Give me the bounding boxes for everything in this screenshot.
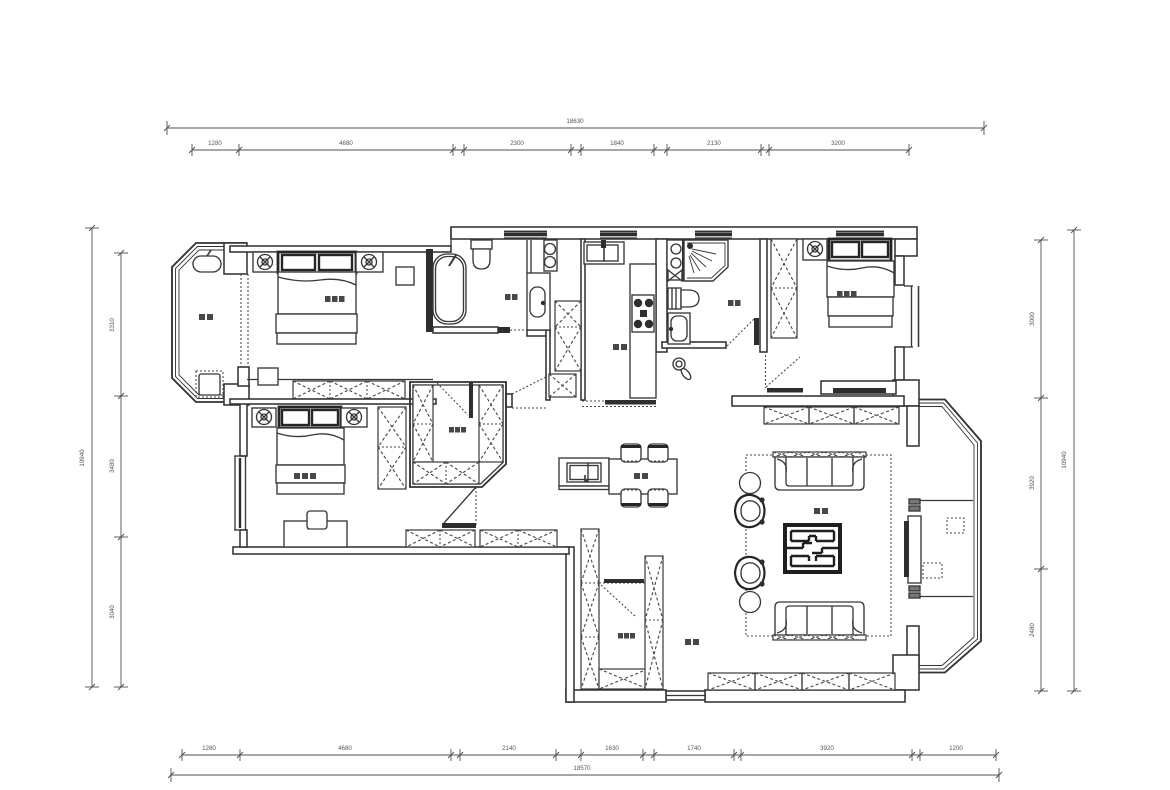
svg-text:1840: 1840	[610, 140, 624, 147]
svg-text:2300: 2300	[510, 140, 524, 147]
svg-text:3310: 3310	[109, 318, 116, 332]
svg-text:3920: 3920	[1029, 476, 1036, 490]
svg-text:1740: 1740	[687, 745, 701, 752]
svg-text:10940: 10940	[1061, 451, 1068, 469]
svg-text:18630: 18630	[566, 118, 584, 125]
svg-text:18570: 18570	[573, 765, 591, 772]
svg-text:3200: 3200	[831, 140, 845, 147]
svg-text:2480: 2480	[1029, 623, 1036, 637]
svg-text:2130: 2130	[707, 140, 721, 147]
svg-text:2140: 2140	[502, 745, 516, 752]
svg-text:3000: 3000	[1029, 312, 1036, 326]
svg-text:4680: 4680	[339, 140, 353, 147]
svg-text:1630: 1630	[605, 745, 619, 752]
svg-text:3480: 3480	[109, 459, 116, 473]
svg-text:1280: 1280	[208, 140, 222, 147]
svg-text:4680: 4680	[338, 745, 352, 752]
svg-text:1280: 1280	[202, 745, 216, 752]
svg-text:1200: 1200	[949, 745, 963, 752]
svg-text:3040: 3040	[109, 605, 116, 619]
svg-text:10940: 10940	[79, 449, 86, 467]
svg-text:3920: 3920	[820, 745, 834, 752]
